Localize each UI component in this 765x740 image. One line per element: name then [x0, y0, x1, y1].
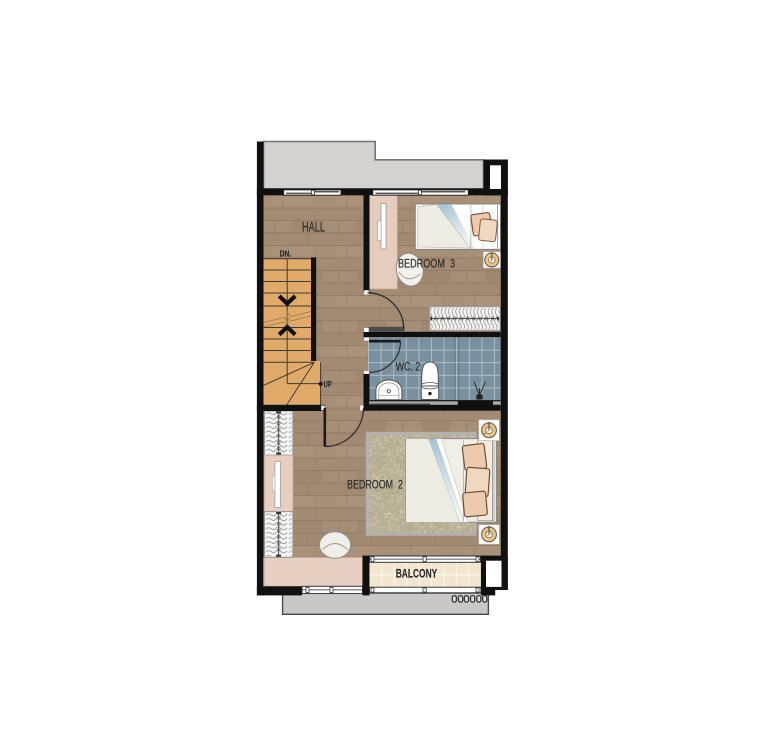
svg-text:UP: UP — [324, 380, 333, 389]
svg-text:BEDROOM 2: BEDROOM 2 — [347, 478, 403, 492]
svg-text:DN.: DN. — [280, 250, 292, 259]
svg-text:BEDROOM 3: BEDROOM 3 — [398, 257, 455, 271]
svg-text:WC. 2: WC. 2 — [396, 359, 421, 373]
svg-text:BALCONY: BALCONY — [396, 566, 438, 580]
svg-text:HALL: HALL — [302, 220, 325, 235]
